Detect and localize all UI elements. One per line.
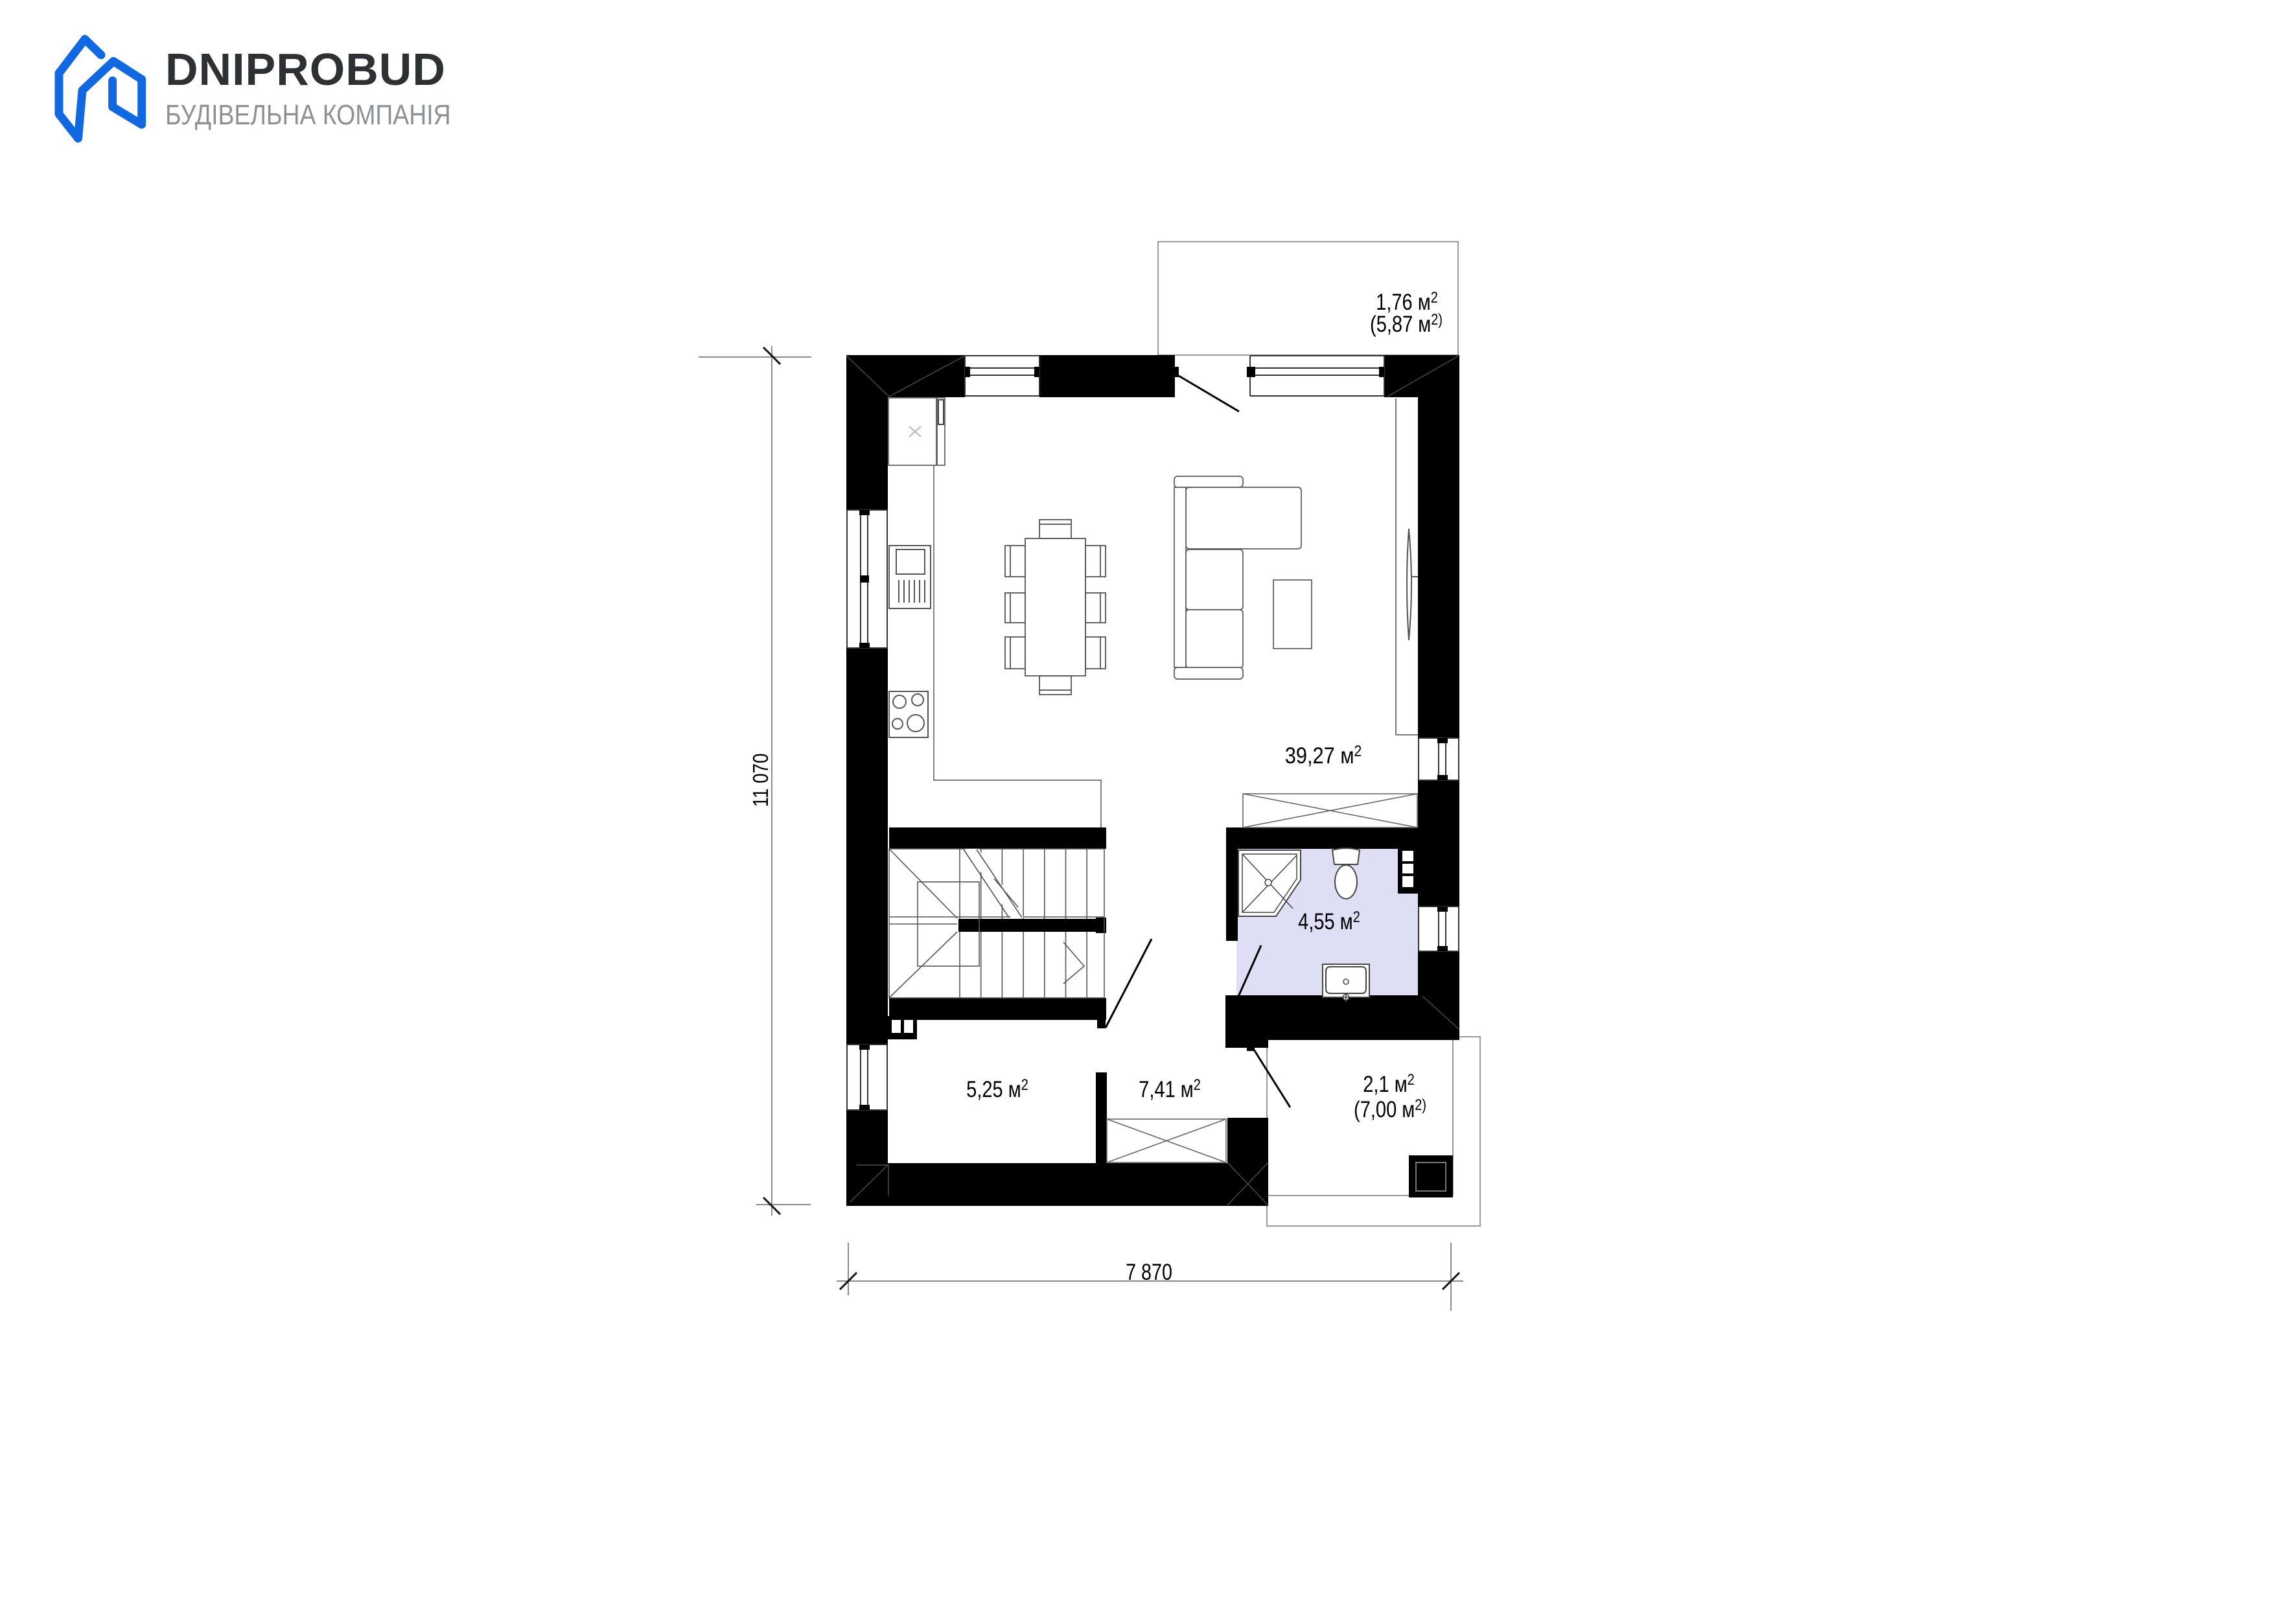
svg-text:39,27 м2: 39,27 м2 (1285, 743, 1362, 769)
svg-text:БУДІВЕЛЬНА КОМПАНІЯ: БУДІВЕЛЬНА КОМПАНІЯ (165, 98, 451, 131)
svg-text:4,55 м2: 4,55 м2 (1298, 908, 1360, 934)
svg-text:5,25 м2: 5,25 м2 (966, 1076, 1028, 1102)
svg-text:7 870: 7 870 (1126, 1259, 1172, 1284)
svg-text:DNIPROBUD: DNIPROBUD (165, 44, 446, 95)
svg-text:11 070: 11 070 (749, 754, 773, 807)
svg-text:7,41 м2: 7,41 м2 (1139, 1076, 1201, 1102)
svg-text:2,1 м2: 2,1 м2 (1363, 1070, 1414, 1096)
